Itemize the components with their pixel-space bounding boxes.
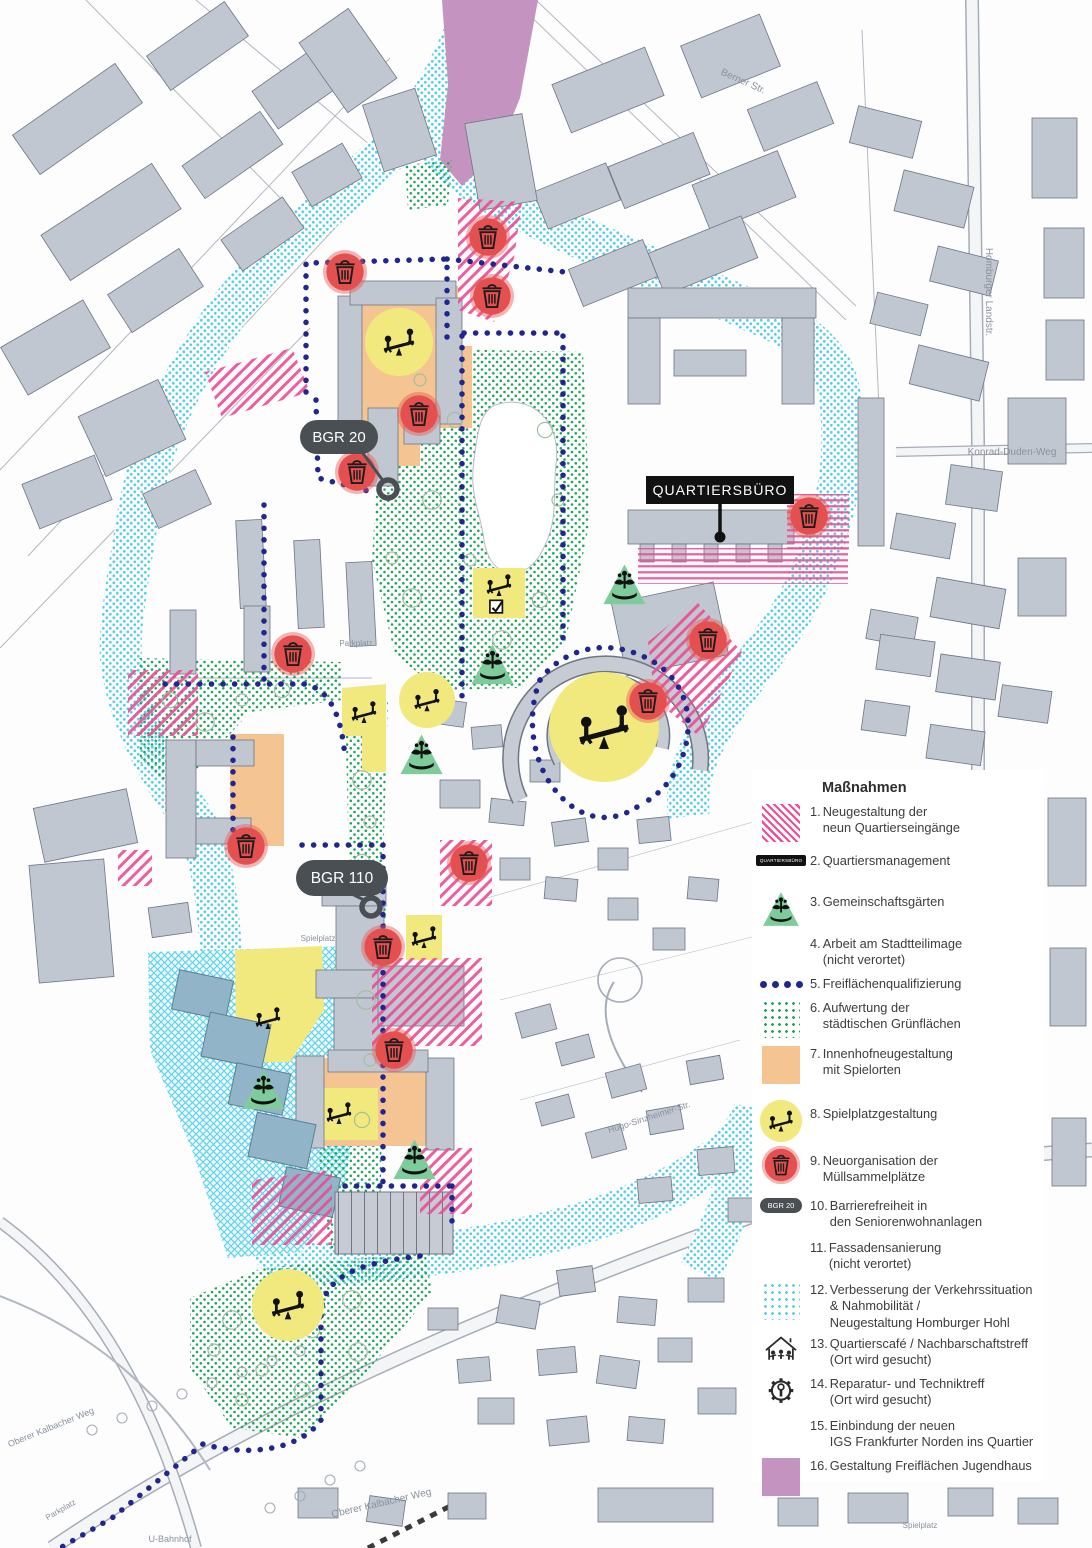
legend-item: 11.Fassadensanierung (nicht verortet) xyxy=(752,1240,1044,1273)
legend-item: 3.Gemeinschaftsgärten xyxy=(752,894,1044,930)
trash-marker xyxy=(447,841,491,885)
building xyxy=(688,1278,724,1302)
building xyxy=(628,288,816,318)
building xyxy=(338,296,362,432)
building xyxy=(29,859,114,983)
legend-item: 12.Verbesserung der Verkehrssituation & … xyxy=(752,1282,1044,1331)
legend-item-label: Fassadensanierung (nicht verortet) xyxy=(829,1240,941,1273)
legend-item: 7.Innenhofneugestaltung mit Spielorten xyxy=(752,1046,1044,1084)
building xyxy=(697,1146,735,1175)
svg-text:BGR 110: BGR 110 xyxy=(311,870,374,887)
legend-item-label: Neuorganisation der Müllsammelplätze xyxy=(823,1153,938,1186)
building xyxy=(848,1493,908,1523)
legend-item-number: 12. xyxy=(810,1282,828,1331)
trash-marker xyxy=(372,1028,416,1072)
legend-item-label: Aufwertung der städtischen Grünflächen xyxy=(823,1000,961,1033)
building xyxy=(448,1493,486,1519)
cafe-house-icon xyxy=(752,1336,810,1370)
pond xyxy=(473,402,557,573)
repair-gear-icon xyxy=(752,1376,810,1408)
legend-item-number: 6. xyxy=(810,1000,821,1033)
community-garden-icon xyxy=(752,894,810,930)
building xyxy=(547,1416,589,1446)
cyan-dots-swatch xyxy=(752,1282,810,1320)
street-label: Parkplatz xyxy=(339,639,372,648)
building xyxy=(617,1296,657,1325)
legend-item-number: 5. xyxy=(810,976,821,992)
legend-item: BGR 2010.Barrierefreiheit in den Seniore… xyxy=(752,1198,1044,1231)
trash-marker xyxy=(470,274,514,318)
legend-item-number: 11. xyxy=(810,1240,827,1273)
building xyxy=(1052,1118,1086,1186)
legend-item: 16.Gestaltung Freiflächen Jugendhaus xyxy=(752,1458,1044,1496)
legend-item-number: 15. xyxy=(810,1418,828,1451)
legend-item-label: Innenhofneugestaltung mit Spielorten xyxy=(823,1046,953,1079)
building xyxy=(426,1058,454,1150)
trash-marker xyxy=(271,632,315,676)
building xyxy=(653,928,685,950)
legend-item-label: Spielplatzgestaltung xyxy=(823,1106,938,1122)
street-label: Spielplatz xyxy=(301,934,336,943)
building xyxy=(551,818,588,846)
building xyxy=(170,610,196,674)
legend-item-label: Freiflächenqualifizierung xyxy=(823,976,962,992)
building xyxy=(628,318,660,404)
building xyxy=(926,724,985,765)
playground-icon xyxy=(752,1106,810,1144)
building xyxy=(627,1416,665,1443)
legend-panel: Maßnahmen 1.Neugestaltung der neun Quart… xyxy=(752,770,1044,1482)
building xyxy=(457,1357,491,1384)
street-label: Konrad-Duden-Weg xyxy=(968,447,1057,458)
building xyxy=(858,398,884,546)
trash-marker xyxy=(335,450,379,494)
legend-item-number: 8. xyxy=(810,1106,821,1122)
trash-marker xyxy=(626,679,670,723)
building xyxy=(166,740,196,858)
building xyxy=(244,606,270,672)
building xyxy=(658,1338,692,1362)
cyan-cross-swatch xyxy=(752,1418,810,1456)
legend-item: 4.Arbeit am Stadtteilimage (nicht verort… xyxy=(752,936,1044,969)
street-label: Spielplatz xyxy=(903,1521,938,1530)
building xyxy=(346,561,376,646)
building xyxy=(489,798,526,826)
legend-item: 1.Neugestaltung der neun Quartierseingän… xyxy=(752,804,1044,842)
green-area xyxy=(405,160,452,210)
trash-marker xyxy=(686,618,730,662)
building xyxy=(628,510,794,544)
playground-area xyxy=(399,672,455,728)
building xyxy=(637,1177,673,1204)
legend-item-number: 1. xyxy=(810,804,821,837)
legend-item: 14.Reparatur- und Techniktreff (Ort wird… xyxy=(752,1376,1044,1409)
building xyxy=(608,898,638,920)
play-area xyxy=(406,915,442,960)
trash-marker xyxy=(397,392,441,436)
legend-item: 13.Quartierscafé / Nachbarschaftstreff (… xyxy=(752,1336,1044,1370)
building xyxy=(436,298,462,424)
building xyxy=(782,318,814,404)
building xyxy=(936,654,1001,700)
building xyxy=(1032,118,1077,198)
legend-item: 15.Einbindung der neuen IGS Frankfurter … xyxy=(752,1418,1044,1456)
legend-item-label: Gestaltung Freiflächen Jugendhaus xyxy=(830,1458,1032,1474)
svg-text:BGR 20: BGR 20 xyxy=(312,429,365,446)
building xyxy=(596,1355,640,1388)
legend-item-number: 7. xyxy=(810,1046,821,1079)
building xyxy=(294,539,325,628)
building xyxy=(1046,320,1084,380)
building xyxy=(428,1308,458,1330)
building xyxy=(196,740,254,766)
purple-swatch xyxy=(752,1458,810,1496)
legend-item-label: Einbindung der neuen IGS Frankfurter Nor… xyxy=(830,1418,1033,1451)
green-dots-swatch xyxy=(752,1000,810,1038)
building xyxy=(1044,228,1084,298)
building xyxy=(778,1498,818,1526)
building xyxy=(537,1346,577,1375)
legend-item-number: 16. xyxy=(810,1458,828,1474)
trash-icon xyxy=(752,1153,810,1185)
trash-marker xyxy=(361,925,405,969)
building xyxy=(598,1488,713,1522)
bgr-pill: BGR 20 xyxy=(752,1198,810,1213)
legend-item-number: 3. xyxy=(810,894,821,910)
building xyxy=(500,858,530,880)
legend-item-label: Quartierscafé / Nachbarschaftstreff (Ort… xyxy=(830,1336,1028,1369)
legend-item-number: 4. xyxy=(810,936,821,969)
legend-item-label: Arbeit am Stadtteilimage (nicht verortet… xyxy=(823,936,962,969)
trash-marker xyxy=(466,215,510,259)
pink-hatch-swatch xyxy=(752,804,810,842)
legend-item-label: Reparatur- und Techniktreff (Ort wird ge… xyxy=(830,1376,985,1409)
site-plan-page: BGR 20 BGR 110 QUARTIERSBÜRO Berner Str.… xyxy=(0,0,1092,1548)
playground-area xyxy=(252,1269,324,1341)
legend-item-label: Gemeinschaftsgärten xyxy=(823,894,945,910)
playground-area xyxy=(365,308,433,376)
legend-item-label: Quartiersmanagement xyxy=(823,853,950,869)
building xyxy=(998,685,1052,724)
trash-marker xyxy=(224,824,268,868)
legend-item: 9.Neuorganisation der Müllsammelplätze xyxy=(752,1153,1044,1186)
legend-item: 6.Aufwertung der städtischen Grünflächen xyxy=(752,1000,1044,1038)
street-label: Homburger Landstr. xyxy=(983,248,994,336)
svg-text:QUARTIERSBÜRO: QUARTIERSBÜRO xyxy=(653,481,788,498)
street-label: U-Bahnhof xyxy=(148,1534,192,1544)
dotted-line-swatch xyxy=(752,976,810,988)
building xyxy=(687,877,719,902)
building xyxy=(637,816,671,843)
legend-item: QUARTIERSBÜRO2.Quartiersmanagement xyxy=(752,853,1044,869)
building xyxy=(148,902,192,937)
legend-item: 5.Freiflächenqualifizierung xyxy=(752,976,1044,992)
checkbox-icon xyxy=(490,600,503,613)
building xyxy=(876,634,935,676)
building xyxy=(440,780,480,808)
building xyxy=(674,350,746,376)
legend-item-number: 9. xyxy=(810,1153,821,1186)
building xyxy=(1050,948,1086,1026)
legend-item-label: Barrierefreiheit in den Seniorenwohnanla… xyxy=(830,1198,982,1231)
legend-title: Maßnahmen xyxy=(822,780,907,796)
building xyxy=(945,465,1002,512)
quartiersbuero-pill: QUARTIERSBÜRO xyxy=(752,853,810,866)
building xyxy=(861,700,910,736)
building xyxy=(698,1388,736,1414)
building xyxy=(598,848,628,870)
legend-item-label: Neugestaltung der neun Quartierseingänge xyxy=(823,804,960,837)
building xyxy=(1018,1498,1058,1524)
building xyxy=(1018,558,1066,616)
trash-marker xyxy=(323,250,367,294)
legend-item-number: 10. xyxy=(810,1198,828,1231)
legend-item-label: Verbesserung der Verkehrssituation & Nah… xyxy=(830,1282,1033,1331)
legend-item-number: 14. xyxy=(810,1376,828,1409)
legend-item-number: 2. xyxy=(810,853,821,869)
orange-swatch xyxy=(752,1046,810,1084)
legend-item-number: 13. xyxy=(810,1336,828,1369)
building xyxy=(556,1266,595,1297)
legend-item: 8.Spielplatzgestaltung xyxy=(752,1106,1044,1144)
building xyxy=(478,1398,514,1424)
building xyxy=(544,877,578,902)
building xyxy=(471,725,503,750)
building xyxy=(1048,798,1086,886)
